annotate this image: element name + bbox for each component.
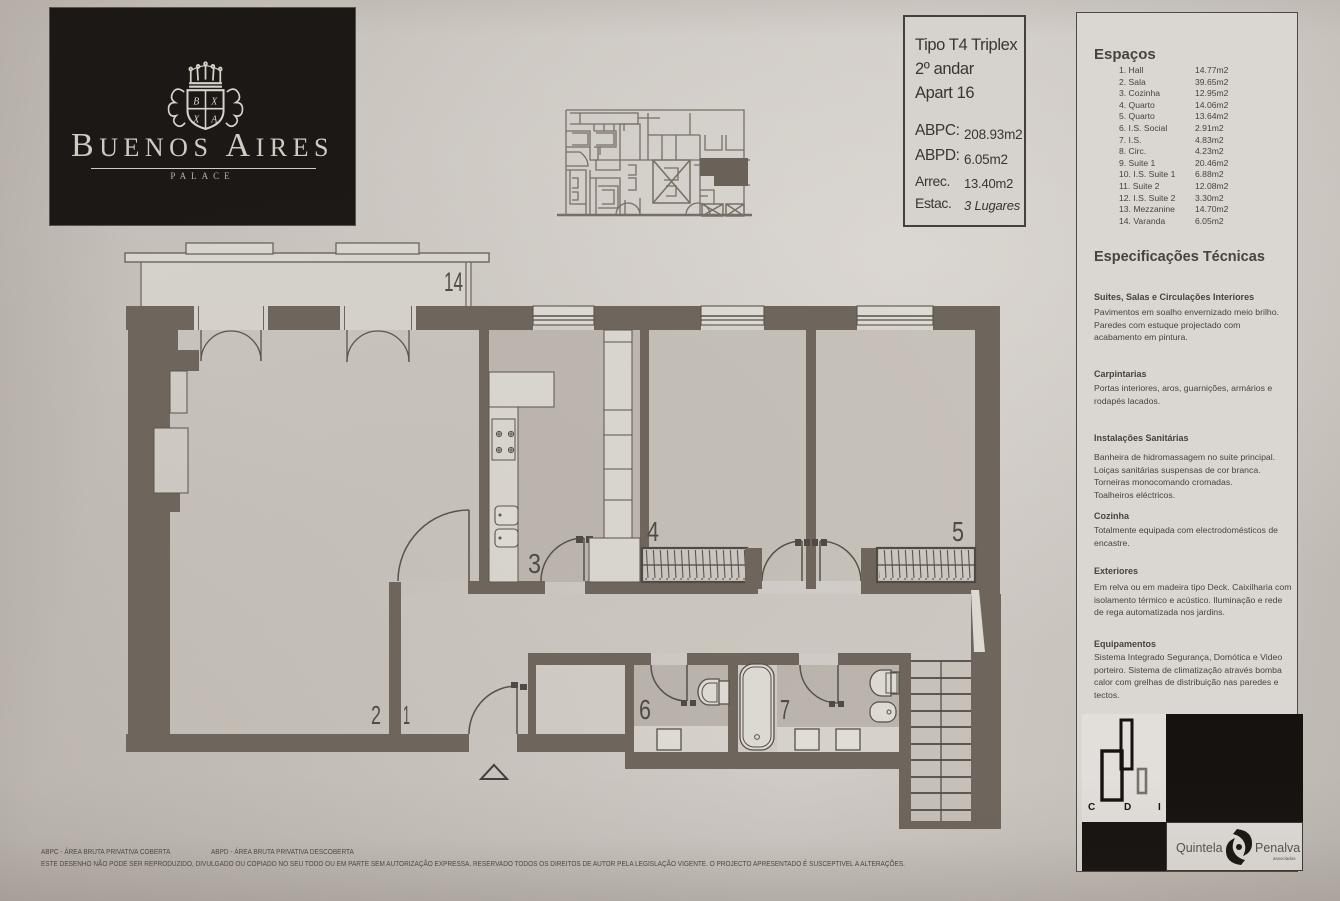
svg-text:7: 7 — [780, 694, 790, 725]
svg-text:4: 4 — [647, 516, 659, 547]
svg-text:3: 3 — [528, 548, 541, 579]
svg-text:6: 6 — [639, 694, 651, 725]
svg-text:2: 2 — [371, 700, 381, 730]
svg-text:1: 1 — [403, 700, 410, 730]
svg-text:5: 5 — [952, 516, 964, 547]
svg-text:14: 14 — [444, 267, 463, 297]
